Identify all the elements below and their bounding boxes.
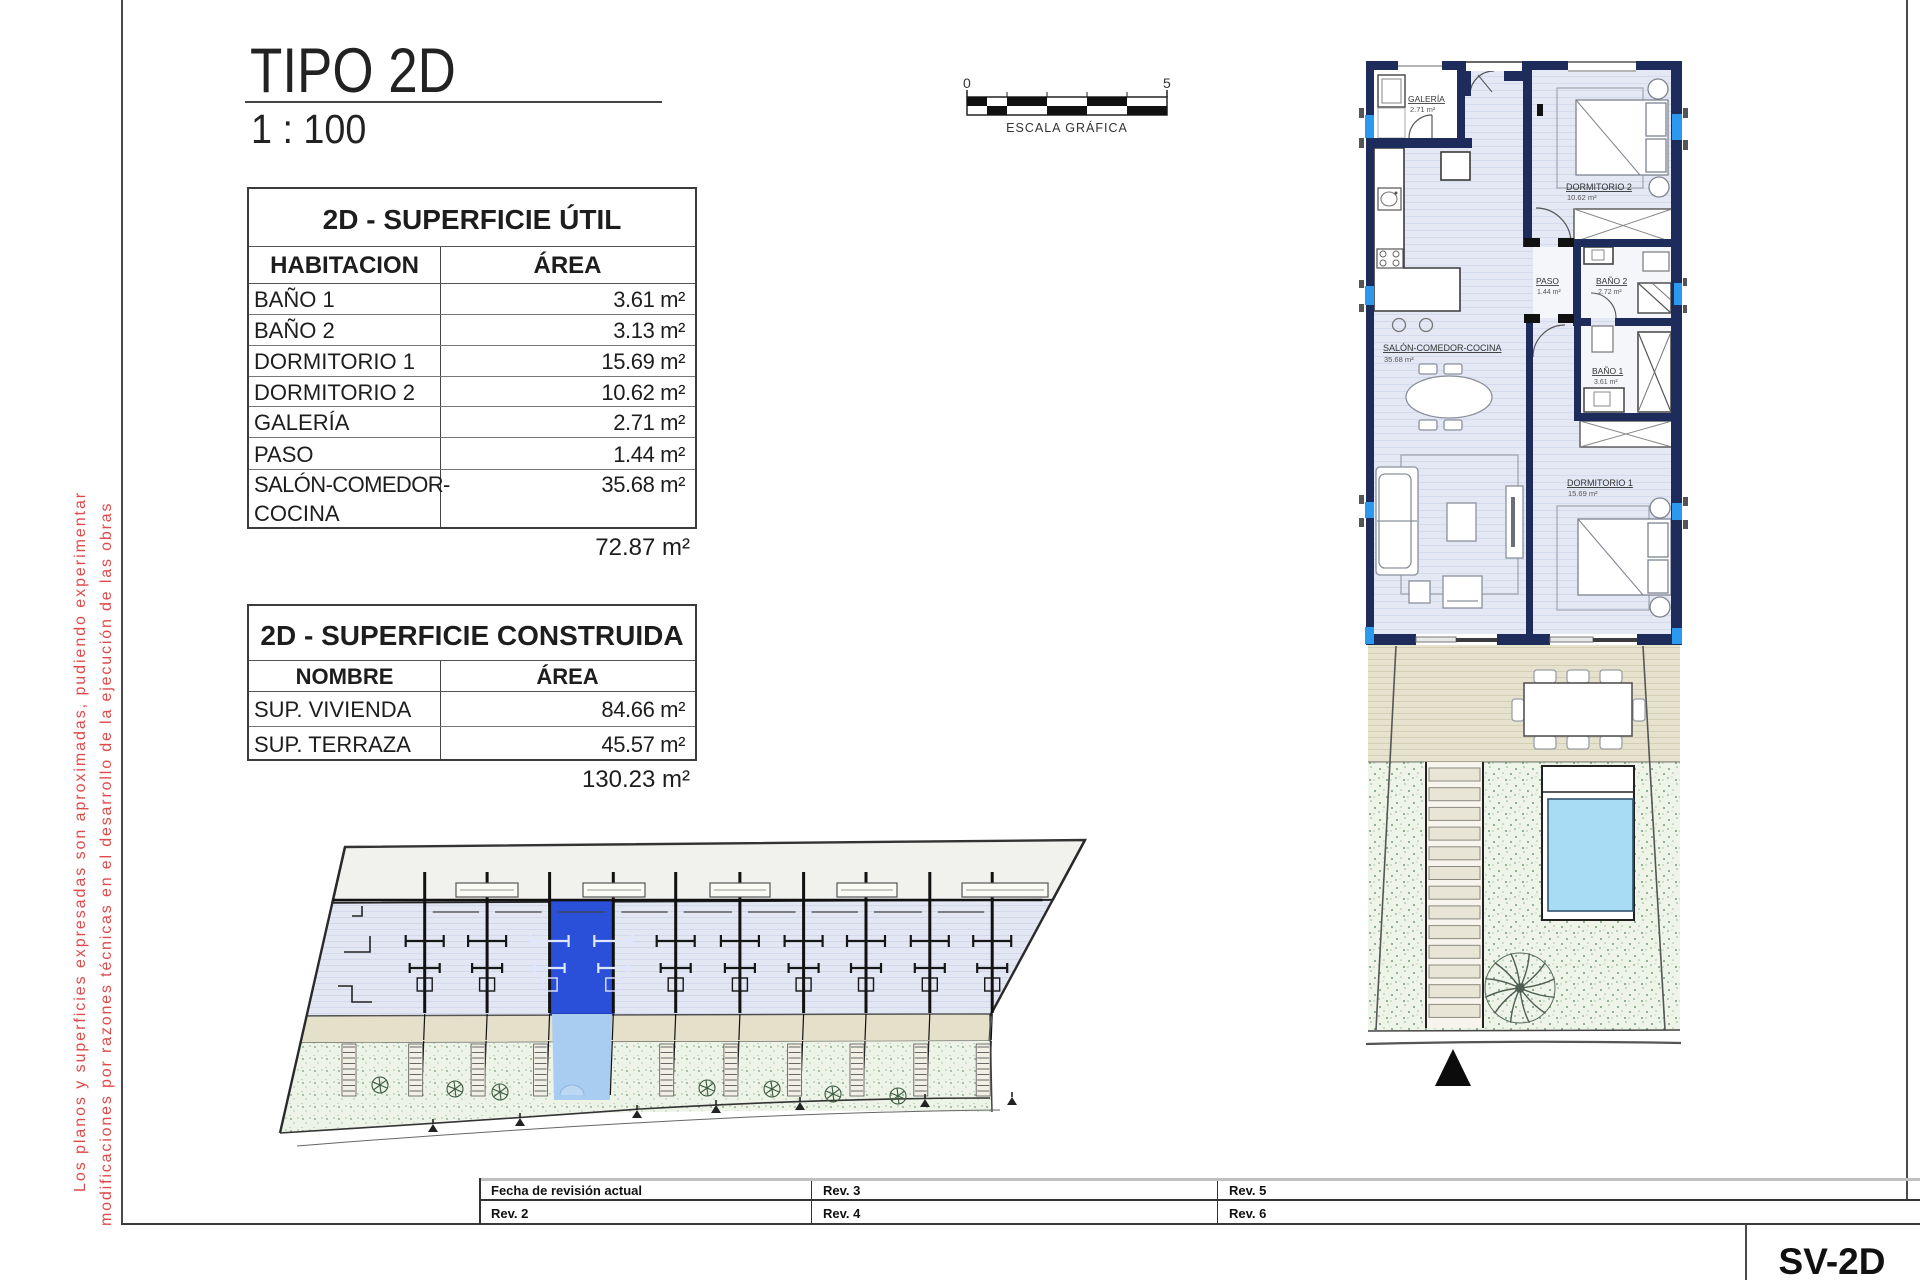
svg-text:2.72 m²: 2.72 m²: [1598, 289, 1622, 296]
svg-text:PASO: PASO: [1536, 276, 1559, 286]
svg-text:SALÓN-COMEDOR-COCINA: SALÓN-COMEDOR-COCINA: [1383, 343, 1502, 353]
svg-text:5: 5: [1163, 75, 1171, 91]
svg-text:BAÑO 2: BAÑO 2: [1596, 276, 1627, 286]
svg-text:2.71 m²: 2.71 m²: [1410, 105, 1436, 114]
svg-text:BAÑO 1: BAÑO 1: [1592, 366, 1623, 376]
svg-text:3.61 m²: 3.61 m²: [1594, 379, 1618, 386]
svg-text:DORMITORIO 2: DORMITORIO 2: [1566, 182, 1632, 192]
svg-text:1.44 m²: 1.44 m²: [1537, 289, 1561, 296]
svg-text:DORMITORIO 1: DORMITORIO 1: [1567, 478, 1633, 488]
svg-text:10.62 m²: 10.62 m²: [1567, 193, 1597, 202]
svg-text:GALERÍA: GALERÍA: [1408, 94, 1445, 104]
svg-text:15.69 m²: 15.69 m²: [1568, 489, 1598, 498]
svg-text:35.68 m²: 35.68 m²: [1384, 355, 1414, 364]
svg-text:ESCALA GRÁFICA: ESCALA GRÁFICA: [1006, 120, 1128, 135]
svg-text:0: 0: [963, 75, 971, 91]
